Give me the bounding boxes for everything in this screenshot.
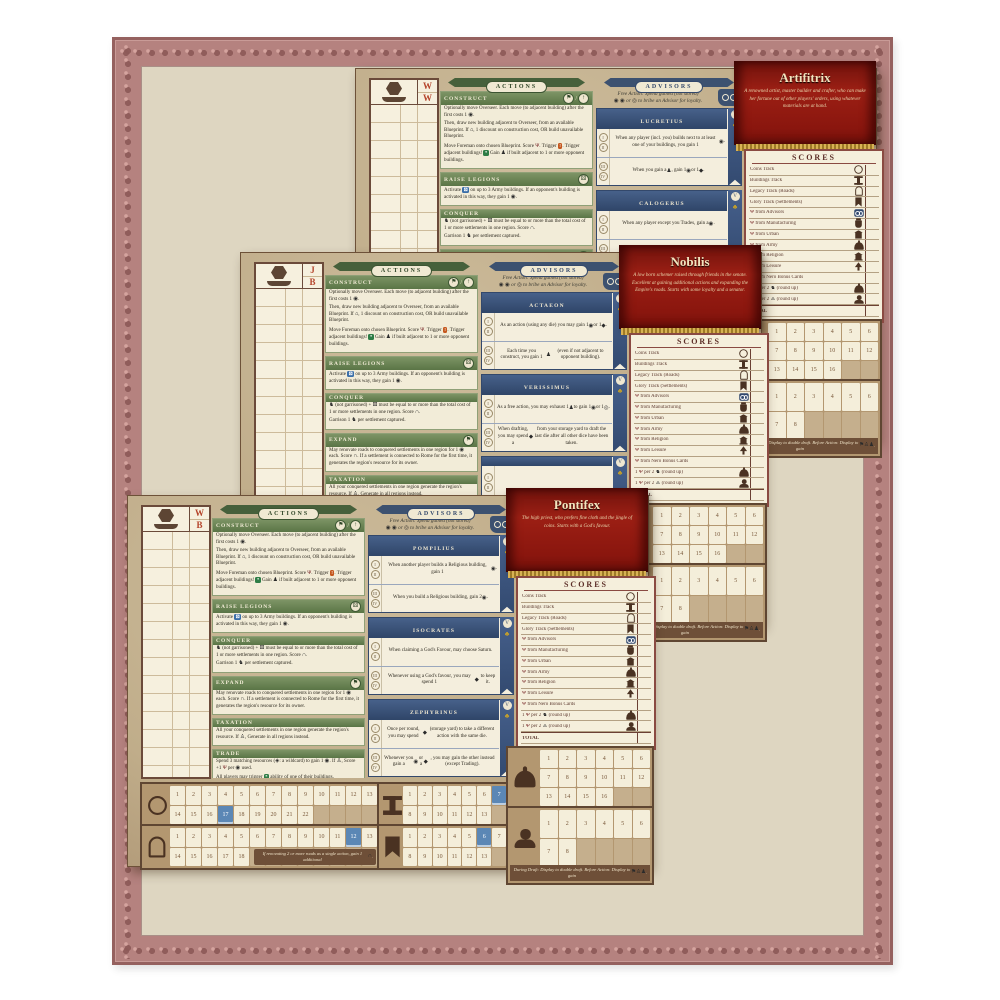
trophy-icon: Ψ (522, 637, 526, 642)
track-cell (492, 848, 506, 867)
level-badge: IV (484, 356, 493, 365)
score-row: Legacy Track (Roads) (749, 187, 879, 198)
senator-icon: ♙ (770, 297, 775, 302)
temple-icon (739, 436, 748, 445)
score-row: Coins Track (521, 592, 651, 603)
action-text: May renovate roads to conquered settleme… (216, 691, 361, 711)
track-cell (842, 412, 860, 440)
level-v-badge: V (503, 701, 512, 710)
score-write-column (637, 624, 651, 634)
track-cell: 9 (418, 806, 432, 825)
score-row: Ψ from Urban (749, 230, 879, 241)
track-cell: 12 (462, 848, 476, 867)
track-cell: 5 (462, 828, 476, 847)
track-cell: 16 (709, 545, 727, 563)
dieblue-icon: ⚄ (234, 614, 241, 620)
track-cell (346, 806, 361, 825)
track-cell: 7 (540, 769, 558, 787)
coin-icon: ◉ (709, 222, 714, 228)
track-cell (709, 596, 727, 624)
level-badge: II (599, 143, 608, 152)
action-text: Activate ⚄ on up to 3 Army buildings. If… (216, 614, 361, 628)
die-icon: ⚄ (463, 358, 474, 369)
track-cell: 7 (768, 342, 786, 360)
action-section: CONQUER♞ (not garrisoned) + ⚄ must be eq… (440, 209, 593, 246)
score-write-column (750, 381, 764, 391)
flag-icon: ⚑ (448, 277, 459, 288)
track-cell (842, 361, 860, 379)
advisor-card: ISOCRATESV♣IIIWhen claiming a God's Favo… (368, 617, 514, 695)
trophy-icon: Ψ (526, 713, 530, 718)
track-cell: 1 (768, 383, 786, 411)
advisor-ability-text: When claiming a God's Favour, may choose… (382, 638, 499, 666)
track-note: If renovating 2 or more roads as a singl… (254, 849, 376, 865)
track-cell (596, 839, 614, 867)
track-cell: 8 (672, 526, 690, 544)
track-cell: 6 (861, 323, 879, 341)
meeple-icon: ♟ (641, 870, 646, 876)
score-label: Buildings Track (749, 178, 852, 183)
club-icon: ♣ (618, 388, 623, 395)
trophy-icon: Ψ (420, 327, 424, 333)
track-cell: 9 (298, 828, 313, 847)
level-badge: I (371, 642, 380, 651)
score-row: Ψ from Religion (521, 678, 651, 689)
track-cell: 13 (768, 361, 786, 379)
coin-icon: ◉ (325, 758, 330, 764)
track-cell: 15 (186, 806, 201, 825)
trophy-icon: Ψ (639, 470, 643, 475)
level-badge: III (484, 346, 493, 355)
track-cell: 3 (202, 828, 217, 847)
column-icon (626, 603, 635, 612)
score-label: Glory Track (Settlements) (521, 627, 624, 632)
action-text: Optionally move Overseer. Each move (to … (329, 290, 474, 303)
score-write-column (637, 635, 651, 645)
score-label: Legacy Track (Roads) (634, 373, 737, 378)
track-cell: 15 (577, 788, 595, 806)
flag-icon: ⚑ (563, 93, 574, 104)
coin-icon: ◉ (591, 406, 596, 412)
track-cell: 14 (559, 788, 577, 806)
dieblue-icon: ⚄ (347, 371, 354, 377)
tile-icon: ! (443, 327, 448, 333)
score-label: Ψ from Leisure (634, 448, 737, 454)
score-label: Ψ from Urban (521, 659, 624, 665)
track-cell: 15 (186, 848, 201, 867)
helm-icon (739, 426, 749, 434)
coin-icon: ◉ (499, 282, 504, 288)
score-label: TOTAL (634, 493, 737, 498)
gear-icon: * (264, 774, 269, 778)
track-cell: 3 (690, 567, 708, 595)
coinw-icon: ◎ (604, 406, 609, 412)
level-badge: I (371, 724, 380, 733)
arrow-icon: ↑ (578, 93, 589, 104)
score-write-column (865, 187, 879, 197)
score-row: Buildings Track (749, 176, 879, 187)
senatorb-icon (515, 829, 536, 848)
score-row: Legacy Track (Roads) (521, 614, 651, 625)
track-cell: 2 (559, 810, 577, 838)
level-badge: IV (371, 681, 380, 690)
meeple-icon: ♟ (569, 406, 574, 412)
tile-icon: ! (330, 570, 335, 576)
coinw-icon: ◎ (404, 525, 409, 531)
track-cell: 15 (805, 361, 823, 379)
track-cell: 11 (614, 769, 632, 787)
track-cell (824, 412, 842, 440)
coin-icon (854, 166, 863, 175)
score-write-column (750, 403, 764, 413)
action-text: Then, draw new building adjacent to Over… (444, 121, 589, 141)
track-cell (727, 545, 745, 563)
track-cell (861, 412, 879, 440)
meeple-icon: ♟ (546, 353, 551, 359)
track-cell: 6 (746, 507, 764, 525)
helm-icon (515, 770, 536, 787)
action-text: Then, draw new building adjacent to Over… (216, 548, 361, 568)
scores-title: SCORES (637, 337, 761, 348)
score-label: 1 Ψ per 2 ♞ (round up) (749, 286, 852, 292)
score-write-column (637, 689, 651, 699)
advisor-ability-text: When you gain a ♟, gain 1 ◉ or 1 ◆. (610, 158, 727, 186)
track-cell: 9 (298, 786, 313, 805)
track-cell: 12 (861, 342, 879, 360)
track-cell: 2 (186, 828, 201, 847)
coin-icon: ◉ (240, 539, 245, 545)
scores-rows: Coins TrackBuildings TrackLegacy Track (… (521, 592, 651, 744)
action-section-title: CONSTRUCT (329, 280, 373, 286)
legion-icon: ♞ (542, 713, 547, 718)
score-write-column (750, 424, 764, 434)
track-cell: 2 (787, 383, 805, 411)
action-section-title: RAISE LEGIONS (444, 177, 500, 183)
coin-icon: ◉ (346, 690, 351, 696)
score-write-column (750, 446, 764, 456)
score-write-column (750, 457, 764, 467)
senatorb-icon (739, 479, 749, 488)
score-write-column (865, 306, 879, 316)
track-cell: 11 (330, 828, 345, 847)
score-write-column (750, 360, 764, 370)
track-cell: 20 (266, 806, 281, 825)
track-cell: 6 (633, 750, 651, 768)
action-section-title: TAXATION (216, 720, 253, 726)
character-banner: Artifitrix A renowned artist, master bui… (734, 61, 876, 145)
track-cell: 13 (362, 786, 377, 805)
helm-icon (739, 469, 749, 477)
level-badge: III (484, 428, 493, 437)
trophy-icon: Ψ (750, 221, 754, 226)
score-write-column (750, 414, 764, 424)
track-cell: 2 (787, 323, 805, 341)
track-cell: 4 (596, 810, 614, 838)
score-row: Buildings Track (521, 603, 651, 614)
advisors-intro-line: ◉ ◉ or ◎ to bribe an Advisor for loyalty… (483, 282, 603, 289)
track-cell: 2 (418, 786, 432, 805)
frame-scroll-pattern-top (118, 43, 887, 61)
score-row: Ψ from Leisure (521, 689, 651, 700)
actions-title: ACTIONS (371, 265, 432, 277)
advisor-ability-text: Each time you construct, you gain 1 ♟ (e… (495, 342, 612, 370)
advisor-name: CALOGERUS (639, 201, 685, 207)
track-cell (746, 596, 764, 624)
trophy-icon: Ψ (750, 210, 754, 215)
level-v-badge: V (503, 619, 512, 628)
score-label: Ψ from Nero Bonus Cards (749, 275, 852, 281)
action-section: CONSTRUCT⚑/↑Optionally move Overseer. Ea… (325, 275, 478, 353)
advisors-intro: Free Action: Spend gained (not stored) ◉… (598, 91, 718, 105)
track-cell: 1 (768, 323, 786, 341)
level-badge: IV (599, 172, 608, 181)
senator-icon: ♙ (542, 724, 547, 729)
coin-icon: ◉ (620, 98, 625, 104)
tree-icon (854, 263, 863, 272)
score-label: Ψ from Nero Bonus Cards (634, 459, 737, 465)
club-icon: ♣ (733, 204, 738, 211)
trophy-icon: Ψ (522, 680, 526, 685)
trophy-icon: Ψ (635, 448, 639, 453)
action-text: Optionally move Overseer. Each move (to … (444, 106, 589, 119)
track-cell: 8 (559, 839, 577, 867)
advisors-ribbon: ADVISORS (376, 502, 506, 516)
track-cell (492, 806, 506, 825)
tally-column: W B (141, 505, 211, 779)
track-cell: 7 (492, 828, 506, 847)
action-text: Activate ⚄ on up to 3 Army buildings. If… (329, 371, 474, 385)
level-badge: II (484, 327, 493, 336)
score-row: 1 Ψ per 2 ♞ (round up) (521, 711, 651, 722)
banner-icon (740, 381, 747, 391)
level-badge: III (371, 753, 380, 762)
track-cell: 17 (218, 806, 233, 825)
level-badge: I (599, 133, 608, 142)
score-write-column (637, 733, 651, 743)
road-icon: ∩ (530, 225, 534, 231)
score-write-column (750, 435, 764, 445)
road-icon: ∩ (415, 409, 419, 415)
score-label: Ψ from Army (749, 243, 852, 249)
score-write-column (865, 273, 879, 283)
track-cell: 7 (540, 839, 558, 867)
trophy-icon: Ψ (522, 691, 526, 696)
legion-icon: ♞ (467, 233, 472, 239)
coinw-icon: ◎ (632, 98, 637, 104)
jar-icon (740, 404, 747, 412)
score-write-column (865, 251, 879, 261)
track-cell: 10 (314, 786, 329, 805)
score-row: Ψ from Army (749, 240, 879, 251)
score-label: Ψ from Manufacturing (634, 405, 737, 411)
track-cell: 6 (477, 828, 491, 847)
track-cell: 6 (250, 786, 265, 805)
score-row: Glory Track (Settlements) (749, 197, 879, 208)
track-cell: 12 (346, 786, 361, 805)
advisors-title: ADVISORS (635, 81, 702, 93)
action-section-title: TAXATION (329, 477, 366, 483)
urban-icon (626, 657, 635, 666)
scores-title: SCORES (524, 580, 648, 591)
legion-icon: ♞ (655, 470, 660, 475)
track-cell: 4 (709, 567, 727, 595)
score-write-column (637, 667, 651, 677)
track-cell: 13 (540, 788, 558, 806)
level-badge: II (371, 652, 380, 661)
score-label: 1 Ψ per 2 ♞ (round up) (521, 713, 624, 719)
tally-header: J B (256, 264, 322, 289)
level-badge: II (371, 570, 380, 579)
track-cell: 22 (298, 806, 313, 825)
actions-ribbon: ACTIONS (333, 259, 470, 273)
level-badge: III (371, 671, 380, 680)
coin-icon (148, 796, 167, 815)
score-write-column (865, 230, 879, 240)
level-badge: I (371, 560, 380, 569)
score-write-column (637, 614, 651, 624)
score-row: Coins Track (749, 165, 879, 176)
action-text: ♞ (not garrisoned) + ⚄ must be equal to … (444, 219, 589, 232)
track-cell: 7 (266, 828, 281, 847)
scores-panel: SCORES Coins TrackBuildings TrackLegacy … (744, 149, 884, 323)
action-section-title: CONQUER (444, 211, 479, 217)
action-section-title: CONSTRUCT (444, 96, 488, 102)
score-write-column (865, 165, 879, 175)
wild-icon: ◈ (275, 758, 279, 764)
score-label: Ψ from Leisure (521, 691, 624, 697)
score-label: Glory Track (Settlements) (749, 200, 852, 205)
advisors-title: ADVISORS (520, 265, 587, 277)
track-cell: 8 (403, 848, 417, 867)
track-cell: 14 (787, 361, 805, 379)
player-initial: B (303, 277, 322, 289)
advisor-name: ISOCRATES (413, 628, 455, 634)
flag-icon: ⚑ (335, 520, 346, 531)
road-icon: ∩ (368, 854, 372, 860)
arch-icon (627, 614, 635, 624)
score-row: Ψ from Urban (634, 414, 764, 425)
advisor-ability-text: As an action (using any die) you may gai… (495, 313, 612, 341)
advisor-name: LUCRETIUS (641, 119, 684, 125)
score-write-column (865, 219, 879, 229)
score-label: Ψ from Religion (521, 680, 624, 686)
action-section: EXPAND⚑May renovate roads to conquered s… (212, 676, 365, 716)
senatorb-icon (626, 722, 636, 731)
score-label: Ψ from Manufacturing (749, 221, 852, 227)
track-cell: 7 (266, 786, 281, 805)
coin-icon: ◉ (614, 98, 619, 104)
die-icon: ⚄ (350, 601, 361, 612)
score-write-column (750, 371, 764, 381)
score-row: Ψ from Manufacturing (521, 646, 651, 657)
track-cell: 13 (362, 828, 377, 847)
dieblue-icon: ⚄ (462, 187, 469, 193)
coinw-icon: ◎ (517, 282, 522, 288)
actions-ribbon: ACTIONS (220, 502, 357, 516)
action-section: CONSTRUCT⚑/↑Optionally move Overseer. Ea… (212, 518, 365, 596)
advisor-ability-text: When you build a Religious building, gai… (382, 585, 499, 613)
score-label: Ψ from Urban (749, 232, 852, 238)
actions-title: ACTIONS (486, 81, 547, 93)
score-row: Ψ from Urban (521, 657, 651, 668)
track-cell: 10 (824, 342, 842, 360)
army-track: 12345678910111213141516 (506, 746, 654, 810)
arch-icon (855, 187, 863, 197)
advisor-ability-text: Whenever using a God's favour, you may s… (382, 667, 499, 695)
score-label: Ψ from Manufacturing (521, 648, 624, 654)
coin-icon: ◉ (283, 621, 288, 627)
track-cell: 11 (448, 848, 462, 867)
track-cell: 8 (672, 596, 690, 624)
character-description: A low born schemer raised through friend… (619, 270, 761, 295)
score-row: 1 Ψ per 2 ♙ (round up) (634, 478, 764, 489)
action-section: TRADESpend 3 matching resources (◈: a wi… (212, 749, 365, 778)
gear-icon: * (483, 150, 488, 156)
track-cell: 2 (672, 507, 690, 525)
score-label: Ψ from Nero Bonus Cards (521, 702, 624, 708)
score-row: Coins Track (634, 349, 764, 360)
coin-icon: ◉ (353, 296, 358, 302)
track-cell (861, 361, 879, 379)
track-cell: 9 (418, 848, 432, 867)
score-row: Ψ from Army (521, 667, 651, 678)
score-row: Ψ from Manufacturing (749, 219, 879, 230)
score-write-column (750, 478, 764, 488)
score-row: Ψ from Religion (749, 251, 879, 262)
track-cell: 21 (282, 806, 297, 825)
track-cell: 5 (842, 323, 860, 341)
action-text: Optionally move Overseer. Each move (to … (216, 533, 361, 546)
action-text: May renovate roads to conquered settleme… (329, 448, 474, 468)
track-cell: 14 (170, 806, 185, 825)
track-cell: 10 (596, 769, 614, 787)
track-cell (314, 806, 329, 825)
track-cell: 3 (805, 323, 823, 341)
senator-icon: ♙ (240, 734, 245, 740)
track-cell (633, 788, 651, 806)
advisor-ability-text: When drafting, you may spend a ◆ from yo… (495, 424, 612, 452)
action-section: CONQUER♞ (not garrisoned) + ⚄ must be eq… (325, 393, 478, 430)
meeple-icon: ♟ (754, 627, 759, 633)
character-name: Pontifex (506, 497, 648, 513)
track-cell: 10 (314, 828, 329, 847)
track-cell: 1 (540, 810, 558, 838)
coin-icon (739, 350, 748, 359)
res-icon: ◆ (699, 169, 703, 175)
track-cell: 12 (346, 828, 361, 847)
advisors-panel: ADVISORS Free Action: Spend gained (not … (368, 502, 514, 780)
die-icon: ⚄ (373, 402, 378, 408)
track-cell: 2 (418, 828, 432, 847)
tree-icon (626, 690, 635, 699)
helm-icon (626, 669, 636, 677)
score-write-column (750, 490, 764, 500)
helm-icon (854, 242, 864, 250)
score-row: 1 Ψ per 2 ♙ (round up) (521, 721, 651, 732)
meeple-icon: ♟ (501, 150, 506, 156)
score-label: Ψ from Advisors (521, 637, 624, 643)
trophy-icon: Ψ (526, 724, 530, 729)
track-cell: 1 (170, 786, 185, 805)
action-section: RAISE LEGIONS⚄Activate ⚄ on up to 3 Army… (325, 356, 478, 390)
advisor-card: ACTAEONV♣IIIAs an action (using any die)… (481, 292, 627, 370)
score-row: Ψ from Leisure (634, 446, 764, 457)
track-cell: 5 (614, 750, 632, 768)
urban-icon (854, 230, 863, 239)
action-text: Spend 3 matching resources (◈: a wildcar… (216, 759, 361, 772)
trophy-icon: Ψ (307, 570, 311, 576)
bust-icon (153, 509, 179, 529)
